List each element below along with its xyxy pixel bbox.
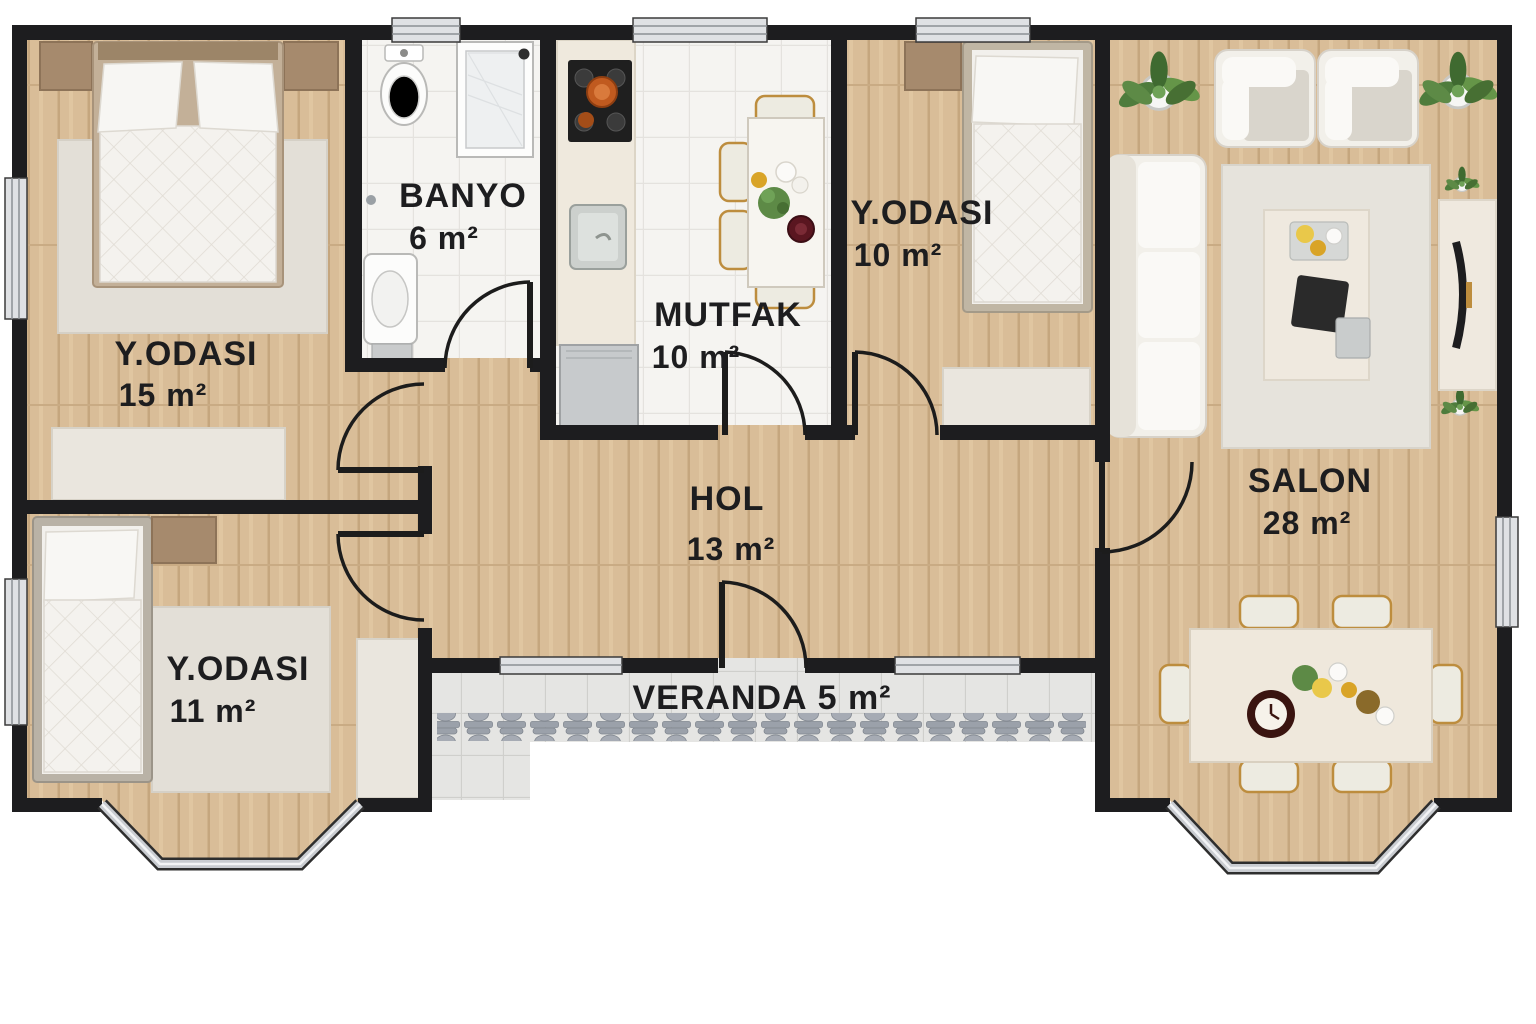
wall-bottom-right-2: [1434, 798, 1512, 812]
bay-floor-living-room: [1168, 798, 1436, 868]
room-label-bedroom-11: Y.ODASI: [166, 650, 309, 688]
room-area-bedroom-15: 15 m²: [119, 377, 208, 413]
wall-bathroom-bottom-left: [345, 358, 445, 372]
floor-plan: Y.ODASI 15 m² BANYO 6 m² MUTFAK 10 m² Y.…: [0, 0, 1536, 1024]
window-top-bedroom10: [916, 18, 1030, 42]
single-bed-bedroom-10: [963, 42, 1092, 312]
window-right-livingroom: [1496, 517, 1518, 627]
wall-kitchen-bedroom10: [831, 40, 847, 440]
room-area-bathroom: 6 m²: [409, 220, 479, 256]
nightstand-right: [284, 42, 338, 90]
toilet: [381, 45, 427, 125]
window-veranda-right: [895, 657, 1020, 674]
book: [1336, 318, 1370, 358]
armchair-left: [1215, 50, 1315, 147]
wall-kitchen-bottom-right: [805, 425, 855, 440]
room-area-living-room: 28 m²: [1263, 505, 1352, 541]
shower: [457, 42, 533, 157]
room-label-bedroom-10: Y.ODASI: [850, 194, 993, 232]
fruit-bowl: [1296, 225, 1314, 243]
bowl-1: [1356, 690, 1380, 714]
room-area-kitchen: 10 m²: [652, 339, 741, 375]
desk-bedroom-11: [152, 517, 216, 563]
dining-chair-right: [1430, 665, 1462, 723]
room-label-veranda: VERANDA5 m²: [632, 679, 891, 717]
wall-bathroom-kitchen: [540, 40, 556, 435]
room-area-hall: 13 m²: [687, 531, 776, 567]
bench-bedroom-15: [52, 428, 285, 500]
stove: [568, 60, 632, 142]
dining-chair-top-1: [1240, 596, 1298, 628]
dining-chair-top-2: [1333, 596, 1391, 628]
table-fruit: [751, 172, 767, 188]
nightstand-bedroom-10: [905, 42, 961, 90]
room-label-living-room: SALON: [1248, 462, 1372, 500]
armchair-right: [1318, 50, 1418, 147]
wall-right: [1497, 25, 1512, 812]
dining-table: [1190, 629, 1432, 762]
bay-floor-bedroom-11: [100, 798, 362, 866]
wall-bedroom15-bathroom: [345, 40, 362, 372]
wall-veranda-2: [622, 658, 718, 673]
tv-console: [1439, 200, 1496, 390]
wall-livingroom-left-lower: [1095, 548, 1110, 812]
kitchen-sink: [570, 205, 626, 269]
veranda-balustrade: [437, 713, 1086, 741]
room-area-bedroom-11: 11 m²: [170, 693, 257, 729]
wall-kitchen-bottom-left: [540, 425, 718, 440]
wall-veranda-1: [432, 658, 500, 673]
room-label-bedroom-15: Y.ODASI: [114, 335, 257, 373]
window-top-bathroom: [392, 18, 460, 42]
dining-chair-left: [1160, 665, 1192, 723]
wall-veranda-3: [805, 658, 895, 673]
window-left-bedroom11: [5, 579, 27, 725]
wall-bedroom15-bedroom11: [27, 500, 418, 514]
dresser-bedroom-10: [943, 368, 1090, 428]
wall-stub-between-doors: [418, 466, 432, 534]
wall-bedroom11-right: [418, 628, 432, 812]
wall-bedroom10-livingroom: [1095, 40, 1110, 462]
veranda-name: VERANDA: [632, 679, 807, 717]
dresser-bedroom-11: [357, 639, 420, 798]
room-area-bedroom-10: 10 m²: [854, 237, 943, 273]
veranda-area: 5 m²: [818, 679, 892, 717]
room-label-bathroom: BANYO: [399, 177, 527, 215]
nightstand-left: [40, 42, 92, 90]
wall-veranda-4: [1020, 658, 1095, 673]
window-veranda-left: [500, 657, 622, 674]
room-label-kitchen: MUTFAK: [654, 296, 802, 334]
dining-chair-bottom-2: [1333, 760, 1391, 792]
single-bed-bedroom-11: [33, 517, 152, 782]
window-top-kitchen: [633, 18, 767, 42]
sofa: [1106, 155, 1206, 437]
coffee-table: [1264, 210, 1370, 380]
room-label-hall: HOL: [690, 480, 765, 518]
wall-bedroom10-bottom: [940, 425, 1110, 440]
window-left-bedroom15: [5, 178, 27, 319]
dining-chair-bottom-1: [1240, 760, 1298, 792]
floor-plan-page: Y.ODASI 15 m² BANYO 6 m² MUTFAK 10 m² Y.…: [0, 0, 1536, 1024]
double-bed: [93, 42, 283, 287]
bowl-2: [1376, 707, 1394, 725]
wall-bottom-left-1: [12, 798, 102, 812]
